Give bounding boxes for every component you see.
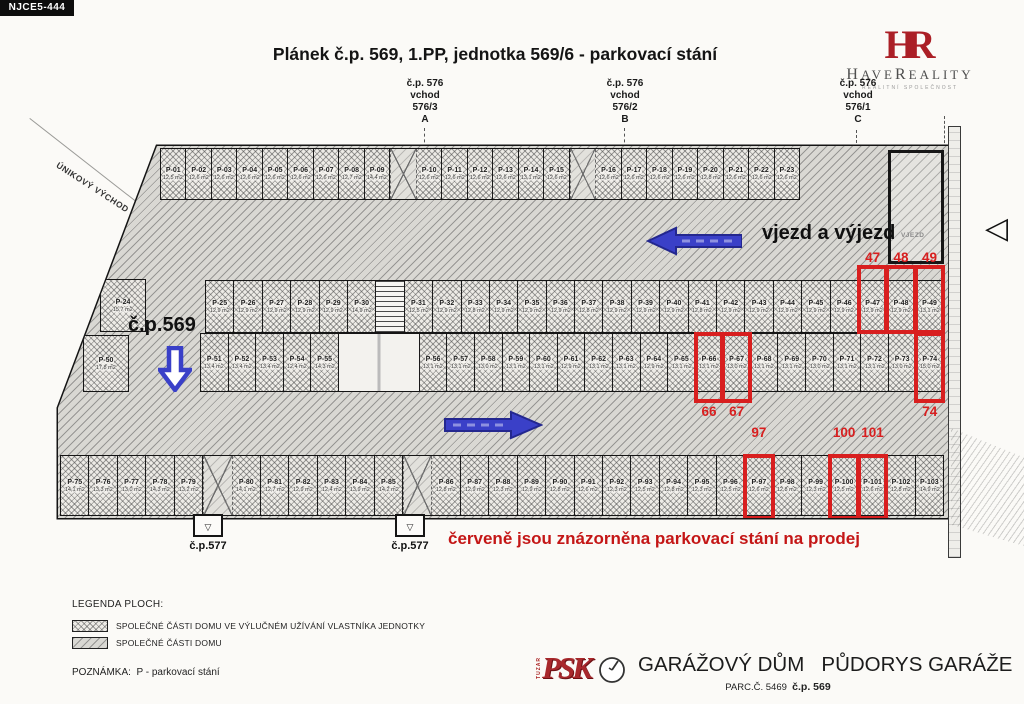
spot-id: P-35 bbox=[524, 300, 541, 307]
spot-id: P-02 bbox=[190, 167, 207, 174]
parking-spot: P-1512,6 m2 bbox=[544, 149, 569, 199]
parking-spot: P-4012,9 m2 bbox=[660, 281, 688, 332]
spot-id: P-94 bbox=[665, 479, 682, 486]
spot-id: P-09 bbox=[369, 167, 386, 174]
spot-area: 13,4 m2 bbox=[204, 364, 224, 370]
parking-spot: P-7113,1 m2 bbox=[834, 334, 862, 391]
parking-spot: P-7213,1 m2 bbox=[861, 334, 889, 391]
spot-id: P-29 bbox=[325, 300, 342, 307]
spot-id: P-73 bbox=[894, 356, 911, 363]
parking-spot: P-2312,6 m2 bbox=[775, 149, 799, 199]
spot-id: P-53 bbox=[261, 356, 278, 363]
parking-spot: P-2812,9 m2 bbox=[291, 281, 319, 332]
spot-id: P-26 bbox=[240, 300, 257, 307]
spot-area: 12,9 m2 bbox=[465, 487, 485, 493]
spot-area: 12,6 m2 bbox=[547, 175, 567, 181]
spot-area: 13,0 m2 bbox=[122, 487, 142, 493]
spot-id: P-06 bbox=[292, 167, 309, 174]
parking-spot: P-4112,8 m2 bbox=[689, 281, 717, 332]
spot-id: P-27 bbox=[268, 300, 285, 307]
entrance-label-a: č.p. 576vchod 576/3A bbox=[393, 78, 457, 126]
entrance-guide-b bbox=[624, 128, 625, 148]
spot-area: 12,9 m2 bbox=[644, 364, 664, 370]
parking-spot: P-3412,9 m2 bbox=[490, 281, 518, 332]
spot-id: P-01 bbox=[165, 167, 182, 174]
parking-spot: P-5113,4 m2 bbox=[201, 334, 229, 391]
spot-area: 12,9 m2 bbox=[749, 308, 769, 314]
entrance-label-c: č.p. 576vchod 576/1C bbox=[826, 78, 890, 126]
spot-id: P-58 bbox=[480, 356, 497, 363]
spot-area: 14,9 m2 bbox=[352, 308, 372, 314]
spot-area: 12,9 m2 bbox=[607, 308, 627, 314]
garage-plan: P-0112,5 m2P-0212,6 m2P-0312,6 m2P-0412,… bbox=[58, 146, 948, 518]
spot-area: 12,8 m2 bbox=[550, 487, 570, 493]
parking-spot-50-block: P-5017,8 m2 bbox=[83, 335, 129, 392]
parking-row-bottom: P-7514,1 m2P-7613,3 m2P-7713,0 m2P-7814,… bbox=[60, 455, 944, 516]
parking-spot: P-3912,9 m2 bbox=[632, 281, 660, 332]
spot-id: P-64 bbox=[645, 356, 662, 363]
spot-area: 12,9 m2 bbox=[295, 308, 315, 314]
entry-exit-label: vjezd a výjezd VJEZD bbox=[762, 222, 924, 245]
spot-area: 14,1 m2 bbox=[236, 487, 256, 493]
spot-id: P-46 bbox=[836, 300, 853, 307]
spot-id: P-51 bbox=[206, 356, 223, 363]
parking-spot: P-1712,6 m2 bbox=[622, 149, 647, 199]
entrance-guide-c bbox=[856, 130, 857, 148]
legend-item-exclusive: SPOLEČNÉ ČÁSTI DOMU VE VÝLUČNÉM UŽÍVÁNÍ … bbox=[72, 620, 425, 632]
spot-area: 12,7 m2 bbox=[265, 487, 285, 493]
floorplan-page: NJCE5-444 Plánek č.p. 569, 1.PP, jednotk… bbox=[0, 0, 1024, 704]
spot-area: 12,8 m2 bbox=[664, 487, 684, 493]
spot-area: 12,8 m2 bbox=[777, 487, 797, 493]
parking-spot: P-6613,1 m266 bbox=[696, 334, 724, 391]
parking-spot: P-2012,8 m2 bbox=[698, 149, 723, 199]
parking-spot: P-0712,6 m2 bbox=[314, 149, 339, 199]
spot-area: 12,6 m2 bbox=[470, 175, 490, 181]
spot-id: P-85 bbox=[380, 479, 397, 486]
spot-area: 12,6 m2 bbox=[624, 175, 644, 181]
spot-id: P-25 bbox=[211, 300, 228, 307]
spot-area: 12,8 m2 bbox=[891, 487, 911, 493]
entrance-guide-a bbox=[424, 128, 425, 148]
spot-area: 12,6 m2 bbox=[240, 175, 260, 181]
titleblock-title: GARÁŽOVÝ DŮM PŮDORYS GARÁŽE bbox=[638, 653, 960, 677]
parking-spot: P-9912,3 m2 bbox=[802, 456, 830, 515]
parking-spot: P-3112,5 m2 bbox=[405, 281, 433, 332]
parking-spot: P-8413,9 m2 bbox=[346, 456, 374, 515]
spot-id: P-42 bbox=[722, 300, 739, 307]
spot-id: P-19 bbox=[677, 167, 694, 174]
parking-spot: P-2612,9 m2 bbox=[234, 281, 262, 332]
spot-area: 12,6 m2 bbox=[265, 175, 285, 181]
building-569-label: č.p.569 bbox=[128, 314, 196, 337]
spot-area: 12,4 m2 bbox=[322, 487, 342, 493]
spot-area: 12,6 m2 bbox=[189, 175, 209, 181]
entrance-label-b: č.p. 576vchod 576/2B bbox=[593, 78, 657, 126]
spot-id: P-39 bbox=[637, 300, 654, 307]
spot-area: 12,4 m2 bbox=[287, 364, 307, 370]
parking-spot: P-4412,9 m2 bbox=[774, 281, 802, 332]
parking-spot: P-4312,9 m2 bbox=[745, 281, 773, 332]
spot-id: P-68 bbox=[756, 356, 773, 363]
spot-id: P-70 bbox=[811, 356, 828, 363]
spot-area: 12,8 m2 bbox=[700, 175, 720, 181]
parking-spot: P-7313,0 m2 bbox=[889, 334, 917, 391]
spot-area: 12,9 m2 bbox=[721, 308, 741, 314]
titleblock-sub: PARC.Č. 5469 č.p. 569 bbox=[638, 681, 918, 693]
ramp-guide bbox=[944, 116, 945, 148]
parking-spot: P-9312,5 m2 bbox=[631, 456, 659, 515]
parking-row-2: P-2512,9 m2P-2612,9 m2P-2712,9 m2P-2812,… bbox=[205, 280, 944, 333]
spot-area: 12,6 m2 bbox=[445, 175, 465, 181]
clock-icon bbox=[598, 656, 626, 684]
spot-area: 12,9 m2 bbox=[834, 308, 854, 314]
parking-spot: P-5913,1 m2 bbox=[503, 334, 531, 391]
spot-id: P-32 bbox=[438, 300, 455, 307]
spot-area: 12,6 m2 bbox=[598, 175, 618, 181]
spot-area: 17,8 m2 bbox=[96, 365, 116, 371]
parking-spot: P-5412,4 m2 bbox=[284, 334, 312, 391]
spot-area: 15,7 m2 bbox=[113, 307, 133, 313]
parking-spot: P-8812,3 m2 bbox=[489, 456, 517, 515]
parking-spot: P-10112,6 m2101 bbox=[859, 456, 887, 515]
parking-spot: P-6813,1 m2 bbox=[751, 334, 779, 391]
spot-id: P-57 bbox=[452, 356, 469, 363]
spot-area: 12,9 m2 bbox=[664, 308, 684, 314]
entry-triangle-icon: ◁ bbox=[985, 214, 1008, 244]
parking-spot: P-10314,9 m2 bbox=[916, 456, 943, 515]
spot-area: 14,3 m2 bbox=[150, 487, 170, 493]
parking-spot: P-6112,9 m2 bbox=[558, 334, 586, 391]
spot-id: P-81 bbox=[266, 479, 283, 486]
spot-area: 12,6 m2 bbox=[777, 175, 797, 181]
spot-area: 13,4 m2 bbox=[260, 364, 280, 370]
parking-spot: P-0812,7 m2 bbox=[339, 149, 364, 199]
parking-spot: P-6713,0 m267 bbox=[723, 334, 751, 391]
parking-spot: P-9412,8 m2 bbox=[660, 456, 688, 515]
spot-id: P-28 bbox=[296, 300, 313, 307]
spot-id: P-41 bbox=[694, 300, 711, 307]
parking-spot: P-8612,8 m2 bbox=[432, 456, 460, 515]
corner-room bbox=[888, 150, 944, 264]
spot-area: 13,9 m2 bbox=[350, 487, 370, 493]
spot-area: 13,1 m2 bbox=[451, 364, 471, 370]
spot-area: 12,6 m2 bbox=[316, 175, 336, 181]
staircase bbox=[376, 281, 404, 332]
parking-spot: P-2912,9 m2 bbox=[320, 281, 348, 332]
building-577-label-left: č.p.577 bbox=[178, 540, 238, 552]
spot-id: P-82 bbox=[295, 479, 312, 486]
spot-area: 12,9 m2 bbox=[550, 308, 570, 314]
spot-area: 13,1 m2 bbox=[837, 364, 857, 370]
spot-area: 12,7 m2 bbox=[342, 175, 362, 181]
spot-id: P-59 bbox=[507, 356, 524, 363]
sale-note: červeně jsou znázorněna parkovací stání … bbox=[448, 529, 944, 549]
spot-id: P-17 bbox=[626, 167, 643, 174]
parking-spot: P-1912,6 m2 bbox=[673, 149, 698, 199]
spot-area: 13,1 m2 bbox=[423, 364, 443, 370]
parking-spot: P-8514,2 m2 bbox=[375, 456, 403, 515]
parking-spot: P-7514,1 m2 bbox=[61, 456, 89, 515]
parking-spot: P-3014,9 m2 bbox=[348, 281, 376, 332]
spot-id: P-13 bbox=[497, 167, 514, 174]
spot-area: 12,9 m2 bbox=[437, 308, 457, 314]
spot-area: 12,6 m2 bbox=[496, 175, 516, 181]
parking-spot: P-1612,6 m2 bbox=[596, 149, 621, 199]
sale-highlight bbox=[857, 454, 888, 520]
parking-spot: P-9512,3 m2 bbox=[688, 456, 716, 515]
spot-id: P-83 bbox=[323, 479, 340, 486]
spot-id: P-31 bbox=[410, 300, 427, 307]
spot-area: 12,9 m2 bbox=[561, 364, 581, 370]
spot-id: P-77 bbox=[123, 479, 140, 486]
spot-area: 13,1 m2 bbox=[616, 364, 636, 370]
sale-number: 74 bbox=[922, 404, 937, 419]
spot-id: P-102 bbox=[891, 479, 912, 486]
spot-id: P-61 bbox=[563, 356, 580, 363]
spot-area: 13,1 m2 bbox=[865, 364, 885, 370]
spot-id: P-20 bbox=[702, 167, 719, 174]
spot-id: P-14 bbox=[523, 167, 540, 174]
spot-area: 12,6 m2 bbox=[726, 175, 746, 181]
parking-spot: P-7013,0 m2 bbox=[806, 334, 834, 391]
sale-highlight bbox=[721, 332, 752, 403]
spot-area: 13,1 m2 bbox=[754, 364, 774, 370]
parking-spot: P-8712,9 m2 bbox=[461, 456, 489, 515]
spot-area: 13,0 m2 bbox=[478, 364, 498, 370]
parking-spot: P-8912,9 m2 bbox=[518, 456, 546, 515]
spot-area: 12,9 m2 bbox=[210, 308, 230, 314]
spot-area: 13,1 m2 bbox=[506, 364, 526, 370]
parking-spot: P-4512,9 m2 bbox=[802, 281, 830, 332]
spot-id: P-33 bbox=[467, 300, 484, 307]
parking-spot: P-9112,6 m2 bbox=[575, 456, 603, 515]
parking-spot: P-9212,3 m2 bbox=[603, 456, 631, 515]
spot-area: 13,0 m2 bbox=[892, 364, 912, 370]
legend-label: SPOLEČNÉ ČÁSTI DOMU bbox=[116, 638, 222, 648]
parking-spot: P-7613,3 m2 bbox=[89, 456, 117, 515]
parking-spot: P-2512,9 m2 bbox=[206, 281, 234, 332]
parking-spot: P-10012,5 m2100 bbox=[830, 456, 858, 515]
spot-id: P-38 bbox=[609, 300, 626, 307]
spot-area: 13,1 m2 bbox=[782, 364, 802, 370]
sale-number: 47 bbox=[865, 250, 880, 265]
parking-spot: P-0914,4 m2 bbox=[365, 149, 390, 199]
psk-logo: TUZAR PSK bbox=[536, 653, 590, 683]
parking-spot: P-3812,9 m2 bbox=[603, 281, 631, 332]
spot-id: P-54 bbox=[289, 356, 306, 363]
spot-area: 13,0 m2 bbox=[809, 364, 829, 370]
spot-id: P-87 bbox=[466, 479, 483, 486]
spot-id: P-24 bbox=[115, 299, 132, 306]
parking-spot: P-1012,6 m2 bbox=[417, 149, 442, 199]
entrance-gap bbox=[403, 456, 432, 515]
spot-area: 12,9 m2 bbox=[293, 487, 313, 493]
parking-spot: P-3712,8 m2 bbox=[575, 281, 603, 332]
spot-id: P-22 bbox=[753, 167, 770, 174]
spot-id: P-45 bbox=[808, 300, 825, 307]
spot-area: 12,5 m2 bbox=[720, 487, 740, 493]
spot-area: 12,3 m2 bbox=[692, 487, 712, 493]
spot-id: P-21 bbox=[728, 167, 745, 174]
parking-spot: P-2112,6 m2 bbox=[724, 149, 749, 199]
spot-id: P-55 bbox=[316, 356, 333, 363]
spot-area: 12,8 m2 bbox=[436, 487, 456, 493]
spot-id: P-56 bbox=[425, 356, 442, 363]
parking-spot: P-1212,6 m2 bbox=[468, 149, 493, 199]
spot-id: P-84 bbox=[352, 479, 369, 486]
spot-id: P-30 bbox=[353, 300, 370, 307]
spot-id: P-93 bbox=[637, 479, 654, 486]
spot-id: P-72 bbox=[866, 356, 883, 363]
parking-spot: P-5613,1 m2 bbox=[420, 334, 448, 391]
sale-number: 48 bbox=[894, 250, 909, 265]
parking-spot: P-4712,9 m247 bbox=[859, 281, 887, 332]
sale-highlight bbox=[914, 332, 945, 403]
spot-area: 12,6 m2 bbox=[675, 175, 695, 181]
spot-area: 12,9 m2 bbox=[238, 308, 258, 314]
spot-id: P-98 bbox=[779, 479, 796, 486]
page-title: Plánek č.p. 569, 1.PP, jednotka 569/6 - … bbox=[235, 44, 755, 65]
spot-area: 12,9 m2 bbox=[521, 487, 541, 493]
parking-spot: P-0612,6 m2 bbox=[288, 149, 313, 199]
crosshatch-swatch-icon bbox=[72, 620, 108, 632]
spot-id: P-12 bbox=[472, 167, 489, 174]
sale-highlight bbox=[857, 265, 888, 334]
spot-id: P-99 bbox=[807, 479, 824, 486]
spot-area: 12,5 m2 bbox=[163, 175, 183, 181]
parking-spot: P-7913,2 m2 bbox=[175, 456, 203, 515]
parking-spot: P-5017,8 m2 bbox=[84, 336, 128, 391]
stair-lobby bbox=[339, 334, 420, 391]
spot-id: P-78 bbox=[152, 479, 169, 486]
scan-stamp: NJCE5-444 bbox=[0, 0, 74, 16]
building-577-label-mid: č.p.577 bbox=[380, 540, 440, 552]
spot-id: P-60 bbox=[535, 356, 552, 363]
spot-id: P-11 bbox=[446, 167, 462, 174]
spot-id: P-52 bbox=[233, 356, 250, 363]
spot-area: 12,5 m2 bbox=[408, 308, 428, 314]
legend-title: LEGENDA PLOCH: bbox=[72, 599, 163, 610]
spot-id: P-18 bbox=[651, 167, 668, 174]
parking-spot: P-4812,9 m248 bbox=[887, 281, 915, 332]
spot-area: 13,1 m2 bbox=[671, 364, 691, 370]
spot-area: 12,6 m2 bbox=[291, 175, 311, 181]
parking-spot: P-6513,1 m2 bbox=[668, 334, 696, 391]
spot-id: P-23 bbox=[778, 167, 795, 174]
parking-spot: P-7713,0 m2 bbox=[118, 456, 146, 515]
spot-id: P-92 bbox=[608, 479, 625, 486]
legend-item-common: SPOLEČNÉ ČÁSTI DOMU bbox=[72, 637, 222, 649]
parking-spot: P-5514,3 m2 bbox=[311, 334, 339, 391]
parking-spot: P-1812,6 m2 bbox=[647, 149, 672, 199]
parking-spot: P-3512,9 m2 bbox=[518, 281, 546, 332]
spot-id: P-89 bbox=[523, 479, 540, 486]
spot-area: 14,3 m2 bbox=[315, 364, 335, 370]
spot-id: P-08 bbox=[343, 167, 360, 174]
spot-area: 13,1 m2 bbox=[521, 175, 541, 181]
sale-highlight bbox=[828, 454, 859, 520]
spot-area: 12,9 m2 bbox=[323, 308, 343, 314]
entrance-gap bbox=[203, 456, 232, 515]
spot-id: P-43 bbox=[751, 300, 768, 307]
parking-spot: P-1112,6 m2 bbox=[442, 149, 467, 199]
spot-id: P-44 bbox=[779, 300, 796, 307]
parking-spot: P-2212,6 m2 bbox=[749, 149, 774, 199]
spot-area: 12,8 m2 bbox=[465, 308, 485, 314]
spot-id: P-05 bbox=[267, 167, 284, 174]
psk-logo-text: PSK bbox=[542, 653, 590, 683]
spot-id: P-04 bbox=[241, 167, 258, 174]
spot-id: P-65 bbox=[673, 356, 690, 363]
spot-id: P-86 bbox=[438, 479, 455, 486]
hr-monogram-icon: HR bbox=[812, 26, 1008, 64]
sale-highlight bbox=[743, 454, 774, 520]
parking-spot: P-1312,6 m2 bbox=[493, 149, 518, 199]
parking-row-3: P-5113,4 m2P-5213,4 m2P-5313,4 m2P-5412,… bbox=[200, 333, 944, 392]
spot-area: 14,1 m2 bbox=[65, 487, 85, 493]
spot-area: 12,6 m2 bbox=[214, 175, 234, 181]
spot-id: P-34 bbox=[495, 300, 512, 307]
spot-id: P-10 bbox=[421, 167, 438, 174]
spot-id: P-36 bbox=[552, 300, 569, 307]
spot-area: 12,6 m2 bbox=[649, 175, 669, 181]
parking-spot: P-0312,6 m2 bbox=[212, 149, 237, 199]
parking-spot: P-9612,5 m2 bbox=[717, 456, 745, 515]
parking-spot: P-5213,4 m2 bbox=[229, 334, 257, 391]
parking-spot: P-7814,3 m2 bbox=[146, 456, 174, 515]
entrance-gap bbox=[390, 149, 416, 199]
parking-spot: P-0512,6 m2 bbox=[263, 149, 288, 199]
spot-id: P-103 bbox=[919, 479, 940, 486]
sale-highlight bbox=[694, 332, 725, 403]
terrain-hatch bbox=[951, 428, 1024, 546]
spot-area: 13,1 m2 bbox=[533, 364, 553, 370]
building-arrow-down-icon bbox=[158, 346, 192, 392]
parking-spot: P-9012,8 m2 bbox=[546, 456, 574, 515]
spot-id: P-80 bbox=[238, 479, 255, 486]
spot-id: P-90 bbox=[551, 479, 568, 486]
spot-id: P-07 bbox=[318, 167, 335, 174]
entrance-gap bbox=[570, 149, 596, 199]
sale-number: 100 bbox=[833, 425, 856, 440]
parking-spot: P-8014,1 m2 bbox=[233, 456, 261, 515]
spot-area: 12,3 m2 bbox=[493, 487, 513, 493]
spot-id: P-88 bbox=[495, 479, 512, 486]
sale-number: 67 bbox=[729, 404, 744, 419]
parking-spot: P-3612,9 m2 bbox=[547, 281, 575, 332]
parking-spot: P-5313,4 m2 bbox=[256, 334, 284, 391]
spot-area: 12,6 m2 bbox=[578, 487, 598, 493]
parking-spot: P-0212,6 m2 bbox=[186, 149, 211, 199]
parking-spot: P-4612,9 m2 bbox=[831, 281, 859, 332]
parking-spot: P-6313,1 m2 bbox=[613, 334, 641, 391]
parking-spot: P-2712,9 m2 bbox=[263, 281, 291, 332]
parking-spot: P-5813,0 m2 bbox=[475, 334, 503, 391]
sale-highlight bbox=[914, 265, 945, 334]
spot-area: 14,9 m2 bbox=[919, 487, 939, 493]
spot-id: P-03 bbox=[216, 167, 233, 174]
spot-area: 13,1 m2 bbox=[589, 364, 609, 370]
spot-area: 12,5 m2 bbox=[635, 487, 655, 493]
spot-area: 12,6 m2 bbox=[751, 175, 771, 181]
spot-area: 12,6 m2 bbox=[419, 175, 439, 181]
parking-spot: P-8112,7 m2 bbox=[261, 456, 289, 515]
spot-id: P-91 bbox=[580, 479, 597, 486]
parking-spot: P-0412,6 m2 bbox=[237, 149, 262, 199]
parking-spot: P-6013,1 m2 bbox=[530, 334, 558, 391]
spot-id: P-79 bbox=[180, 479, 197, 486]
